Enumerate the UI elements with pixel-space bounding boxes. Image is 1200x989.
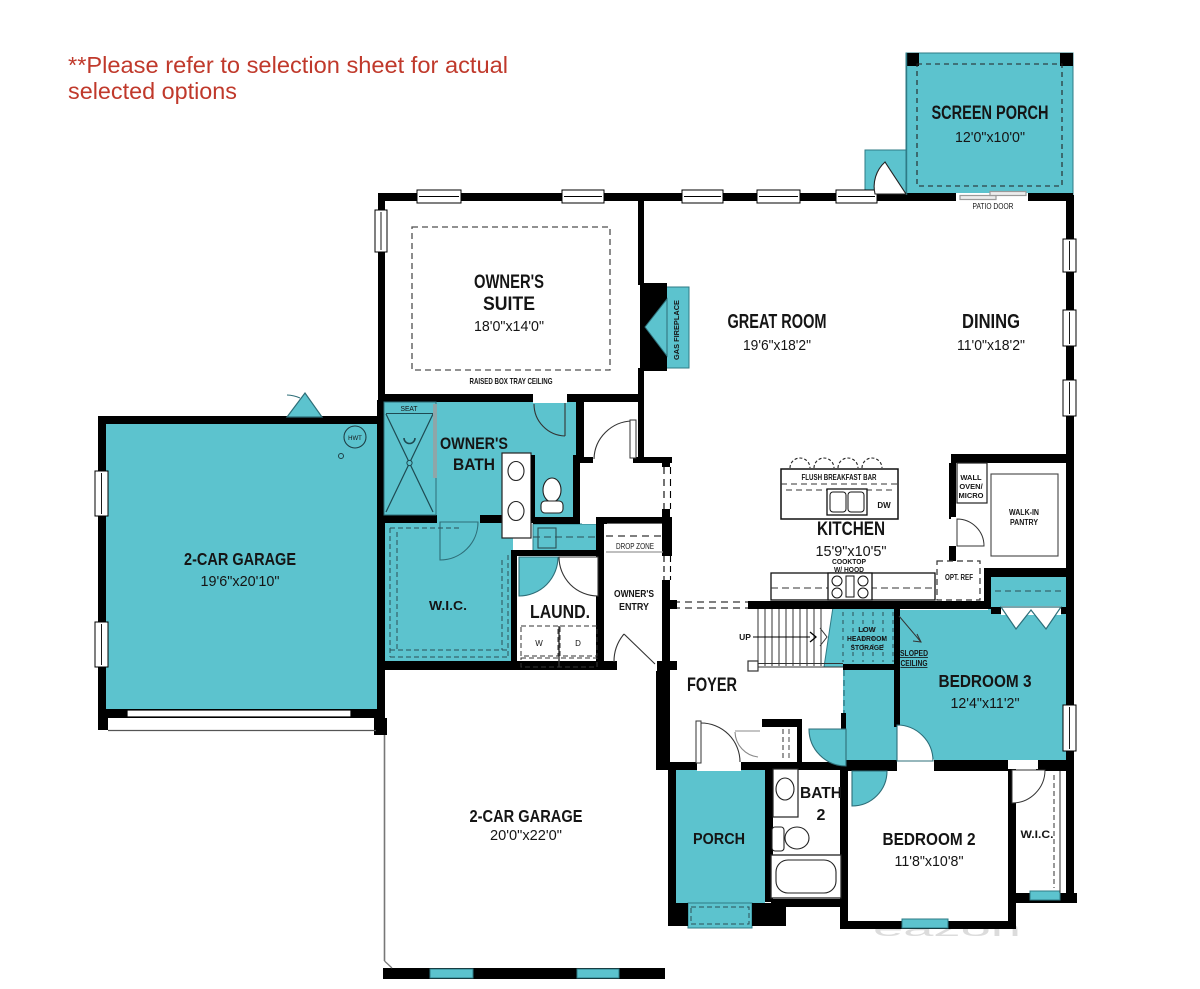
- svg-text:WALK-IN: WALK-IN: [1009, 508, 1039, 517]
- svg-text:SLOPED: SLOPED: [900, 649, 928, 658]
- svg-text:LOW: LOW: [858, 625, 876, 634]
- svg-text:**Please refer to selection sh: **Please refer to selection sheet for ac…: [68, 52, 508, 78]
- svg-text:LAUND.: LAUND.: [530, 601, 590, 622]
- svg-text:MICRO: MICRO: [959, 491, 984, 500]
- svg-text:HWT: HWT: [348, 436, 362, 442]
- svg-text:W: W: [535, 639, 543, 648]
- svg-text:W.I.C.: W.I.C.: [1021, 829, 1054, 841]
- svg-text:2: 2: [817, 807, 826, 824]
- svg-text:KITCHEN: KITCHEN: [817, 518, 885, 540]
- svg-text:SCREEN PORCH: SCREEN PORCH: [932, 103, 1049, 124]
- svg-text:19'6"x20'10": 19'6"x20'10": [201, 573, 280, 590]
- svg-text:DINING: DINING: [962, 311, 1020, 333]
- svg-text:GAS FIREPLACE: GAS FIREPLACE: [674, 300, 681, 360]
- svg-text:OWNER'S: OWNER'S: [474, 272, 544, 293]
- svg-text:HEADROOM: HEADROOM: [847, 634, 887, 643]
- svg-text:12'0"x10'0": 12'0"x10'0": [955, 129, 1025, 146]
- svg-text:D: D: [575, 639, 581, 648]
- svg-text:FOYER: FOYER: [687, 675, 737, 696]
- svg-text:11'8"x10'8": 11'8"x10'8": [895, 853, 964, 870]
- svg-text:UP: UP: [739, 632, 751, 642]
- svg-text:W/ HOOD: W/ HOOD: [834, 565, 865, 574]
- svg-text:PORCH: PORCH: [693, 831, 745, 848]
- svg-text:18'0"x14'0": 18'0"x14'0": [474, 318, 544, 335]
- svg-text:20'0"x22'0": 20'0"x22'0": [490, 827, 562, 844]
- svg-text:BATH: BATH: [453, 456, 495, 474]
- svg-text:2-CAR GARAGE: 2-CAR GARAGE: [470, 806, 583, 826]
- svg-text:BEDROOM 2: BEDROOM 2: [883, 829, 976, 849]
- svg-text:PATIO DOOR: PATIO DOOR: [973, 202, 1014, 211]
- svg-text:OWNER'S: OWNER'S: [440, 435, 508, 453]
- svg-text:CEILING: CEILING: [901, 659, 928, 668]
- svg-text:OPT. REF: OPT. REF: [945, 573, 973, 582]
- svg-text:STORAGE: STORAGE: [851, 643, 884, 652]
- svg-text:GREAT ROOM: GREAT ROOM: [728, 311, 827, 333]
- svg-text:ENTRY: ENTRY: [619, 601, 649, 613]
- svg-text:WALL: WALL: [960, 473, 982, 482]
- svg-text:19'6"x18'2": 19'6"x18'2": [743, 337, 811, 354]
- svg-text:W.I.C.: W.I.C.: [429, 599, 467, 613]
- svg-text:SUITE: SUITE: [483, 294, 535, 315]
- svg-text:SEAT: SEAT: [401, 406, 419, 413]
- svg-text:OVEN/: OVEN/: [959, 482, 983, 491]
- svg-text:FLUSH BREAKFAST BAR: FLUSH BREAKFAST BAR: [802, 473, 877, 482]
- svg-text:2-CAR GARAGE: 2-CAR GARAGE: [184, 549, 296, 569]
- svg-text:RAISED BOX TRAY CEILING: RAISED BOX TRAY CEILING: [470, 376, 553, 386]
- svg-text:12'4"x11'2": 12'4"x11'2": [951, 695, 1020, 712]
- svg-text:BATH: BATH: [800, 785, 842, 802]
- svg-text:PANTRY: PANTRY: [1010, 518, 1039, 527]
- svg-text:DROP ZONE: DROP ZONE: [616, 542, 654, 551]
- svg-text:11'0"x18'2": 11'0"x18'2": [957, 337, 1025, 354]
- svg-text:selected options: selected options: [68, 78, 237, 104]
- svg-text:OWNER'S: OWNER'S: [614, 588, 654, 600]
- svg-text:BEDROOM 3: BEDROOM 3: [939, 671, 1032, 691]
- svg-text:DW: DW: [877, 501, 891, 510]
